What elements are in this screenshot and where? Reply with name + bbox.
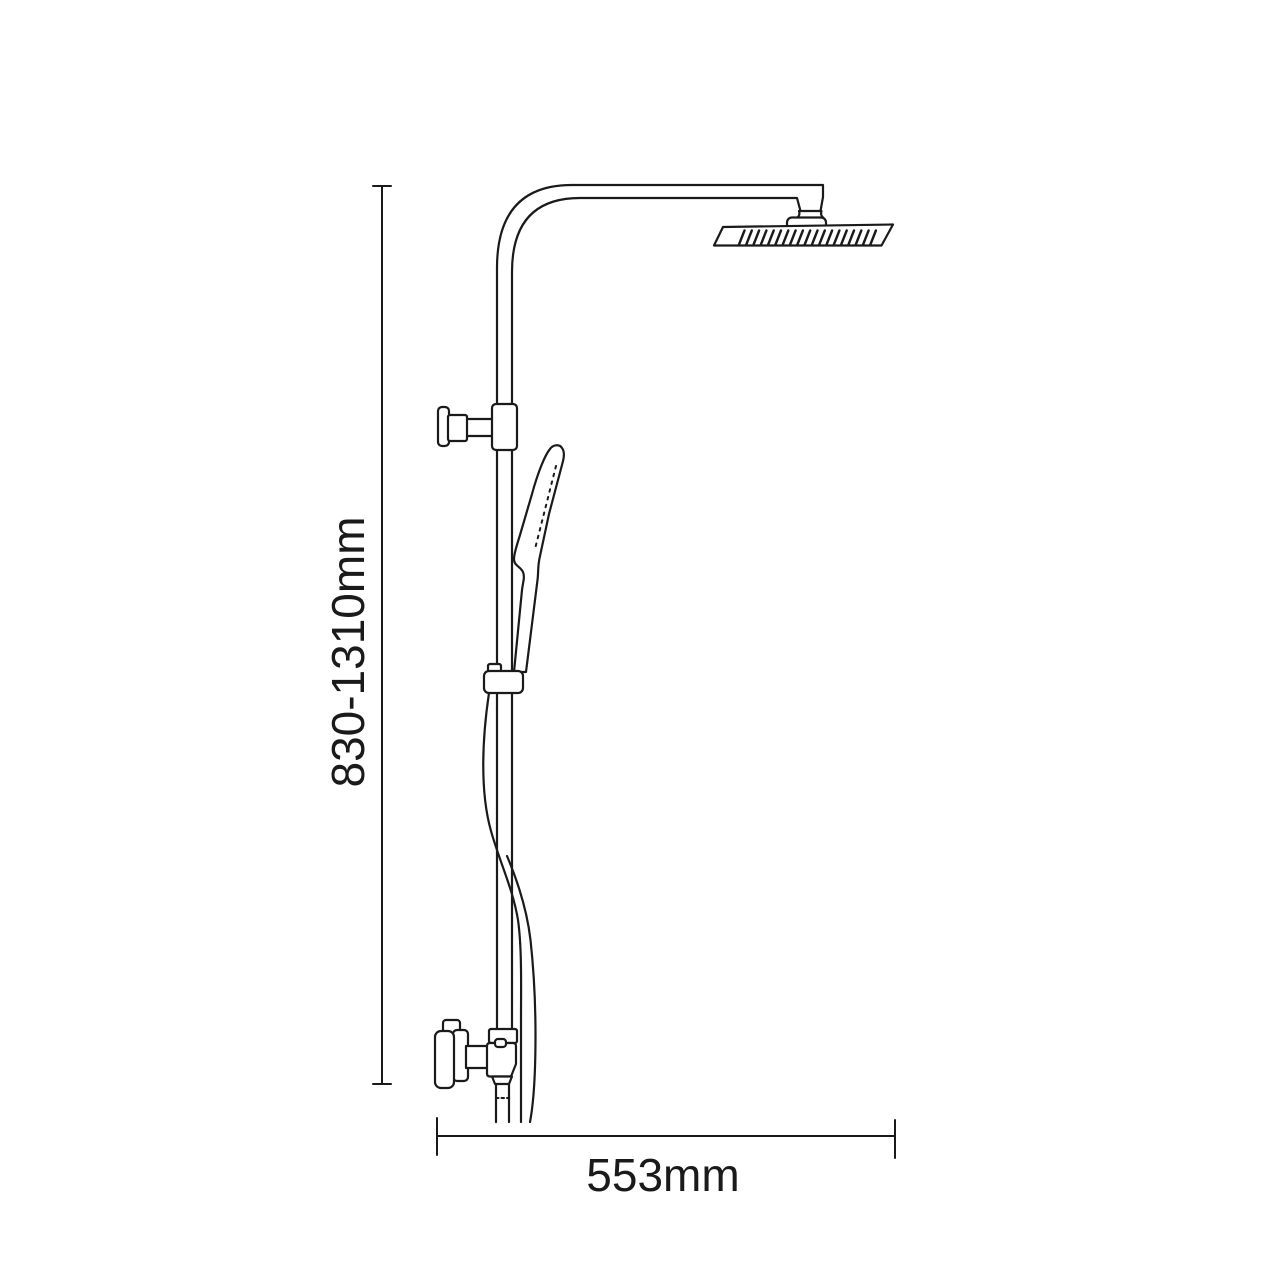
wall-bracket-collar: [492, 404, 517, 450]
wall-bracket-block: [448, 415, 467, 441]
width-dimension-label: 553mm: [586, 1149, 739, 1201]
valve-top-nub: [495, 1039, 506, 1047]
shower-dimension-diagram: 830-1310mm 553mm: [0, 0, 1280, 1280]
slider-bracket-clamp: [484, 671, 523, 693]
valve-knob-handle: [435, 1031, 454, 1088]
valve-outlet-step: [492, 1077, 512, 1085]
wall-bracket-arm: [465, 419, 493, 436]
height-dimension-label: 830-1310mm: [322, 516, 374, 787]
diagram-canvas: 830-1310mm 553mm: [0, 0, 1280, 1280]
background: [0, 0, 1280, 1280]
valve-stem: [466, 1046, 488, 1068]
